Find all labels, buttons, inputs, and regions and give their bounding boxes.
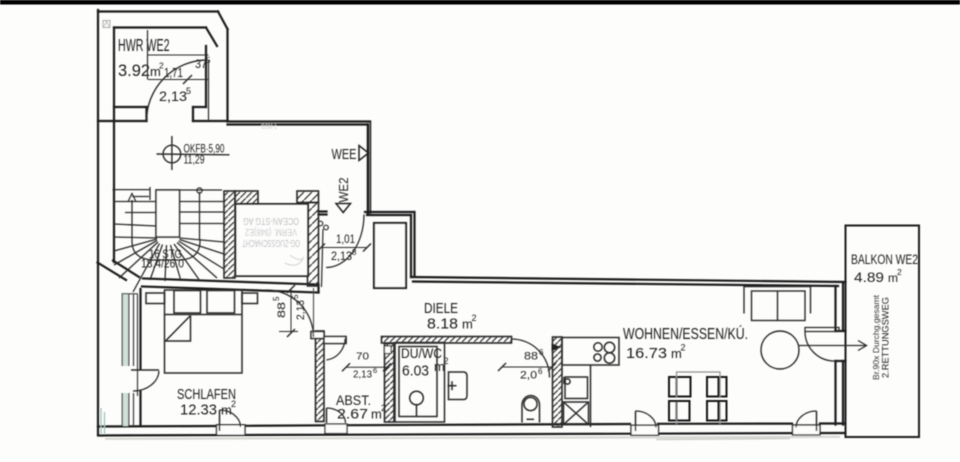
svg-text:88: 88: [276, 302, 288, 318]
svg-text:WEE: WEE: [332, 146, 357, 163]
svg-text:2: 2: [231, 399, 236, 409]
svg-text:6: 6: [538, 367, 543, 376]
svg-text:5: 5: [272, 296, 281, 301]
svg-text:70: 70: [356, 351, 369, 363]
svg-text:18.4/26.0: 18.4/26.0: [141, 259, 184, 271]
svg-text:HWR WE2: HWR WE2: [118, 35, 170, 55]
svg-text:2: 2: [681, 343, 686, 353]
svg-text:2,0: 2,0: [520, 370, 537, 382]
svg-text:2,13: 2,13: [295, 300, 307, 320]
svg-text:12.33: 12.33: [180, 403, 217, 419]
svg-text:8.18: 8.18: [427, 316, 458, 333]
svg-text:1,01: 1,01: [336, 232, 355, 246]
svg-text:5: 5: [291, 294, 300, 299]
svg-text:11,29: 11,29: [184, 153, 205, 167]
svg-text:2: 2: [897, 267, 902, 277]
svg-text:1,71: 1,71: [164, 66, 183, 80]
svg-text:BALKON WE2: BALKON WE2: [851, 252, 918, 267]
svg-text:2,13: 2,13: [353, 369, 372, 381]
svg-text:Br.90x Durchg.gesamt: Br.90x Durchg.gesamt: [871, 294, 881, 380]
svg-text:6: 6: [539, 348, 544, 357]
svg-text:DIELE: DIELE: [424, 300, 458, 317]
svg-text:GSM-1: GSM-1: [261, 122, 277, 131]
svg-text:SCHLAFEN: SCHLAFEN: [177, 387, 236, 403]
svg-text:5: 5: [186, 86, 191, 96]
svg-text:2,13: 2,13: [331, 249, 352, 263]
svg-text:OCEAN-STG AG: OCEAN-STG AG: [243, 215, 299, 226]
svg-text:6.03: 6.03: [402, 363, 429, 380]
svg-text:3.92: 3.92: [118, 61, 150, 80]
svg-text:88: 88: [524, 351, 538, 363]
svg-text:WOHNEN/ESSEN/KÚ.: WOHNEN/ESSEN/KÚ.: [623, 324, 748, 343]
svg-text:16.73: 16.73: [626, 345, 667, 362]
svg-text:2: 2: [381, 403, 386, 413]
svg-text:2: 2: [472, 313, 477, 323]
svg-text:2,13: 2,13: [159, 89, 187, 104]
svg-text:VERM. (948)E2: VERM. (948)E2: [245, 226, 297, 237]
svg-text:2.RETTUNGSWEG: 2.RETTUNGSWEG: [881, 297, 892, 378]
svg-text:4.89: 4.89: [854, 270, 884, 285]
svg-text:6: 6: [373, 366, 377, 375]
svg-text:WE2: WE2: [336, 178, 351, 203]
svg-text:OG-ZUGSSCHACHT: OG-ZUGSSCHACHT: [242, 237, 300, 248]
svg-text:8: 8: [352, 248, 357, 257]
